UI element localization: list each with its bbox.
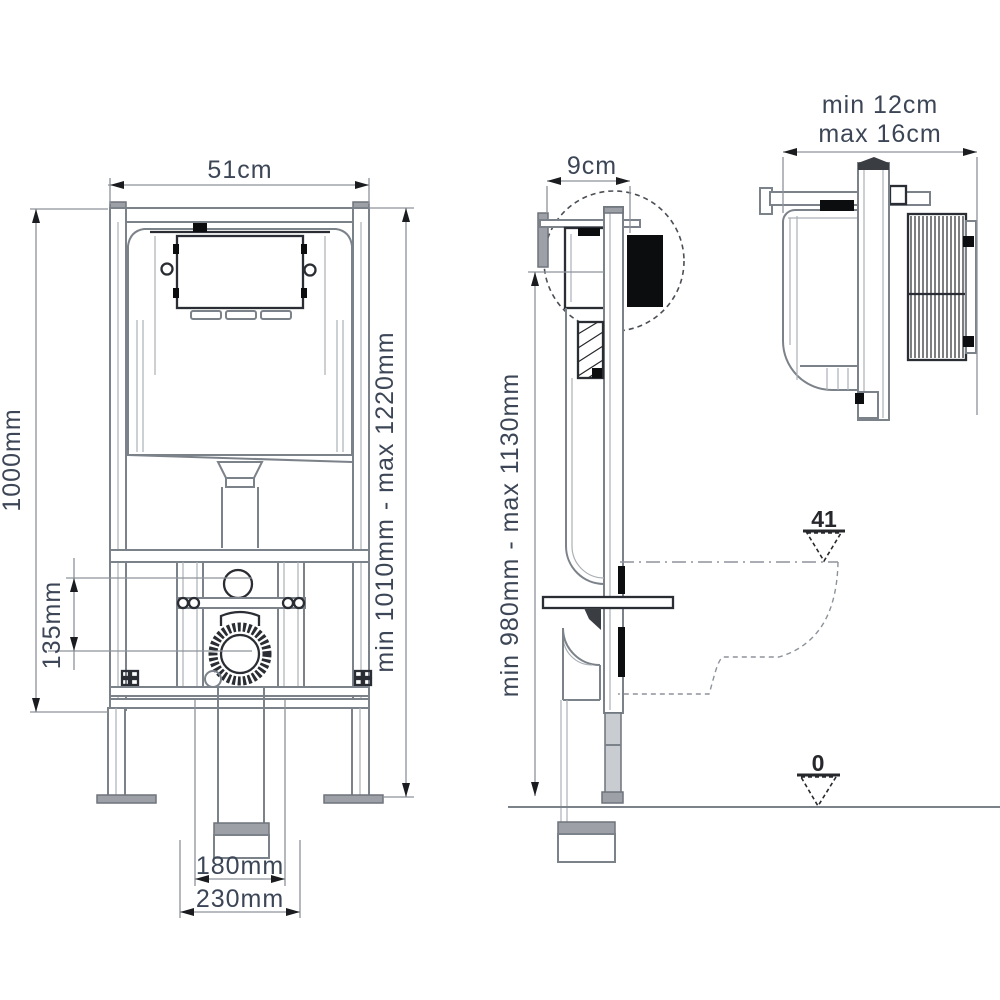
technical-drawing-canvas: 51cm 1000mm min 1010mm - max 1220mm 135m… [0,0,1000,1000]
detail-range-line1: min 12cm [822,91,938,119]
seat-level-value: 41 [811,506,837,532]
front-frame-height-label: 1000mm [0,408,26,511]
detail-frame-post [858,163,889,420]
detail-post-cap [858,157,889,170]
side-adjustable-height-label: min 980mm - max 1130mm [496,373,524,697]
pan-support-bracket [543,597,673,608]
front-offset-label: 135mm [38,581,66,669]
inner-post-left [177,562,203,688]
front-waste-inner-label: 180mm [196,852,284,880]
front-waste-outer-label: 230mm [196,885,284,913]
detail-rod-nut [890,186,906,204]
wall-bracket-rod [540,220,640,227]
detail-range-line2: max 16cm [818,120,941,148]
foot-plate-right [324,795,383,803]
detail-cistern [783,210,858,390]
wc-pan-outline [618,562,838,694]
side-coupling-body [558,834,615,862]
front-adjustable-height-label: min 1010mm - max 1220mm [371,331,399,672]
side-coupling-band [558,822,615,834]
frame-cross-rail [110,550,369,562]
foot-plate-left [97,795,156,803]
fixing-rod-lower [618,627,625,677]
bracket-hook [584,608,601,630]
detail-protection-sleeve [908,214,966,360]
cistern-top-tab [193,223,207,232]
cistern-access-panel [177,236,303,308]
small-fitting [205,671,221,687]
wc-frame-technical-drawing: 51cm 1000mm min 1010mm - max 1220mm 135m… [0,0,1000,1000]
side-foot [602,792,623,803]
side-depth-label: 9cm [567,152,617,180]
front-view [97,202,383,858]
fixing-rod-upper [618,566,625,594]
detail-view [760,157,976,420]
flush-plate-shaft [627,235,663,307]
waste-coupling-band [214,823,269,835]
front-width-label: 51cm [207,156,272,184]
flush-pipe-funnel [218,462,262,478]
frame-top-rail [110,208,369,222]
side-leg [605,713,621,793]
floor-level-value: 0 [812,750,825,776]
water-inlet-port [224,570,252,598]
seat-level-marker: 41 [803,506,845,561]
floor-level-marker: 0 [797,750,840,806]
detail-flush-plate-edge [820,200,854,211]
inner-post-right [278,562,304,688]
